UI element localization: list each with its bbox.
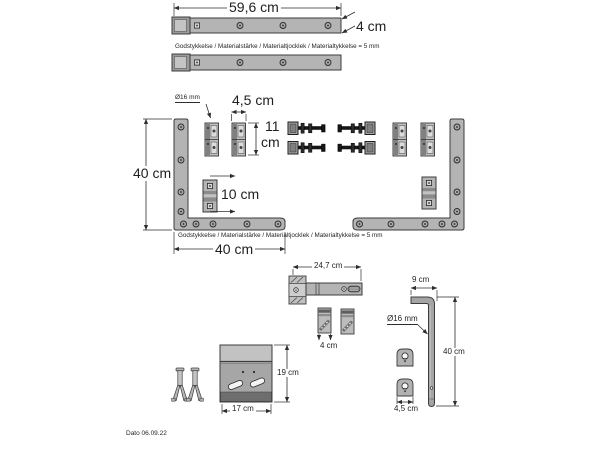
spacer-right — [422, 177, 436, 209]
pipe-clamp-2 — [232, 123, 246, 156]
parts-drawing — [0, 0, 600, 450]
label-keyhole-plate-width: 4,5 cm — [394, 405, 418, 413]
flat-bar-middle — [172, 54, 341, 71]
mounting-plate — [220, 345, 272, 402]
label-rod-top-length: 9 cm — [412, 276, 429, 284]
dim-clamp-width — [232, 112, 247, 121]
bolt-2 — [288, 142, 325, 155]
l-bracket-right — [353, 119, 464, 230]
label-clamp-height-value: 11 — [265, 119, 280, 134]
label-thickness-note-top: Godstykkelse / Materialstärke / Material… — [175, 44, 380, 51]
label-rod-diameter: Ø16 mm — [387, 315, 418, 325]
label-clamp-width: 4,5 cm — [232, 93, 274, 108]
pipe-clamp-3 — [393, 123, 407, 156]
dim-bar-width — [342, 12, 355, 33]
label-date: Dato 06.09.22 — [126, 431, 167, 438]
keyhole-plate-1 — [397, 349, 413, 366]
leader-clamp-diameter — [206, 104, 211, 118]
label-rod-length: 40 cm — [441, 348, 467, 356]
dim-keyhole-width — [397, 397, 413, 404]
flat-bar-top — [172, 17, 341, 34]
spacer-left — [203, 180, 217, 212]
label-spacer-length: 10 cm — [221, 187, 259, 202]
dim-clamp-height — [248, 123, 259, 155]
label-frame-height: 40 cm — [131, 166, 173, 181]
bolt-1 — [288, 122, 325, 135]
label-plate-width: 17 cm — [230, 405, 256, 413]
pipe-clamp-4 — [421, 123, 435, 156]
label-clip-width: 4 cm — [320, 342, 337, 350]
latch-assembly — [289, 276, 362, 304]
label-plate-height: 19 cm — [275, 369, 301, 377]
strap-clip-2 — [341, 309, 354, 334]
strap-clip-1 — [318, 308, 331, 333]
keyhole-plate-2 — [397, 379, 413, 396]
label-bar-length: 59,6 cm — [227, 0, 281, 15]
dim-clip-width — [319, 334, 331, 340]
label-latch-length: 24,7 cm — [312, 262, 344, 270]
label-bar-width: 4 cm — [356, 19, 386, 34]
parts-drawing-sheet: 59,6 cm 4 cm Godstykkelse / Materialstär… — [0, 0, 600, 450]
bolt-3 — [338, 122, 375, 135]
label-frame-width: 40 cm — [213, 242, 255, 257]
bolt-4 — [338, 142, 375, 155]
label-thickness-note-bottom: Godstykkelse / Materialstärke / Material… — [178, 233, 383, 240]
cotter-pin-2 — [187, 368, 204, 401]
label-clamp-height-unit: cm — [261, 135, 280, 150]
leader-rod-diameter — [418, 325, 428, 334]
pipe-clamp-1 — [205, 123, 219, 156]
label-clamp-diameter: Ø16 mm — [175, 95, 200, 103]
cotter-pin-1 — [172, 368, 189, 401]
